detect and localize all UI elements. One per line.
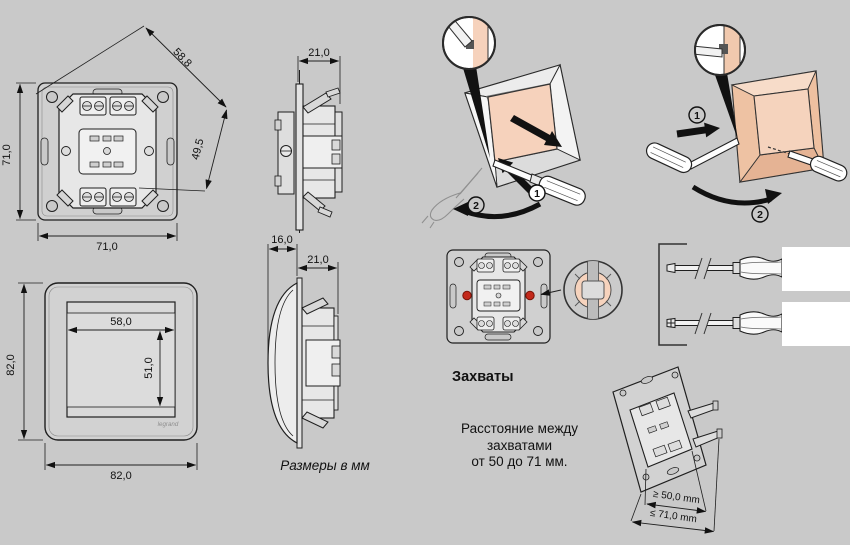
mechanism-with-grips [447, 250, 550, 343]
dim-label-21b: 21,0 [307, 254, 328, 266]
dim-label-71mm: ≤ 71,0 mm [649, 508, 697, 525]
dim-label-71-left: 71,0 [1, 144, 13, 165]
figure-plate-front: legrand 82,0 82,0 58,0 51,0 [0, 255, 240, 500]
handle-end-block [782, 302, 850, 346]
dim-label-58-8: 58,8 [170, 46, 194, 70]
dim-label-51: 51,0 [143, 357, 155, 378]
switch-mechanism [57, 94, 158, 208]
distance-note-line1: Расстояние между [432, 421, 607, 438]
figure-mechanism-rear-3d: ≥ 50,0 mm ≤ 71,0 mm [590, 355, 850, 545]
brand-logo: legrand [158, 421, 179, 428]
step-2-badge: 2 [468, 197, 484, 213]
grip-screw-left [463, 291, 471, 299]
mechanism-3d-drawing [613, 367, 722, 492]
step-2-badge: 2 [752, 206, 768, 222]
grip-screw-right [526, 291, 534, 299]
dim-label-58: 58,0 [110, 316, 131, 328]
figure-mechanism-side: 21,0 [240, 0, 420, 255]
cover-plate: legrand [45, 283, 197, 440]
svg-text:2: 2 [757, 209, 763, 221]
figure-mechanism-front: 71,0 71,0 58,8 49,5 [0, 0, 240, 255]
dimension-height-71: 71,0 [1, 83, 36, 220]
dim-label-21-side: 21,0 [308, 47, 329, 59]
svg-text:1: 1 [694, 110, 700, 122]
screwdriver-left [644, 138, 739, 175]
phillips-screwdriver [667, 302, 850, 346]
mechanism-side-drawing [275, 70, 342, 233]
dim-label-49-5: 49,5 [190, 137, 207, 161]
dim-label-82-bottom: 82,0 [110, 470, 131, 482]
step-1-badge: 1 [529, 185, 545, 201]
instruction-sheet: 71,0 71,0 58,8 49,5 [0, 0, 850, 545]
dimension-plate-width-82: 82,0 [45, 443, 197, 482]
figure-switch-side: 16,0 21,0 Размеры в мм [230, 230, 430, 485]
svg-text:1: 1 [534, 188, 540, 200]
rocker-face [754, 89, 814, 155]
distance-note: Расстояние между захватами от 50 до 71 м… [432, 421, 607, 471]
distance-note-line2: захватами [432, 438, 607, 455]
flat-screwdriver [667, 247, 850, 291]
rotate-arrow [453, 201, 540, 217]
dim-label-50mm: ≥ 50,0 mm [652, 489, 700, 506]
switch-side-drawing [268, 278, 340, 448]
distance-note-line3: от 50 до 71 мм. [432, 454, 607, 471]
figure-install-mount: 1 2 [630, 0, 850, 240]
handle-end-block [782, 247, 850, 291]
insert-arrow [677, 123, 721, 138]
figure-install-remove: 1 2 [420, 0, 645, 235]
dim-label-82-left: 82,0 [5, 354, 17, 375]
grip-detail-inset [564, 260, 622, 320]
units-note: Размеры в мм [280, 458, 370, 473]
dim-label-71-bottom: 71,0 [96, 241, 117, 253]
grips-label: Захваты [452, 369, 513, 385]
figure-screwdrivers [645, 235, 850, 360]
bracket [659, 244, 687, 345]
rotate-arrow [693, 187, 782, 204]
dimension-plate-height-82: 82,0 [5, 283, 43, 440]
dim-label-16: 16,0 [271, 234, 292, 246]
svg-text:2: 2 [473, 200, 479, 212]
dimension-width-71: 71,0 [38, 223, 177, 253]
grip-claw-upper [688, 403, 716, 418]
step-1-badge: 1 [689, 107, 705, 123]
